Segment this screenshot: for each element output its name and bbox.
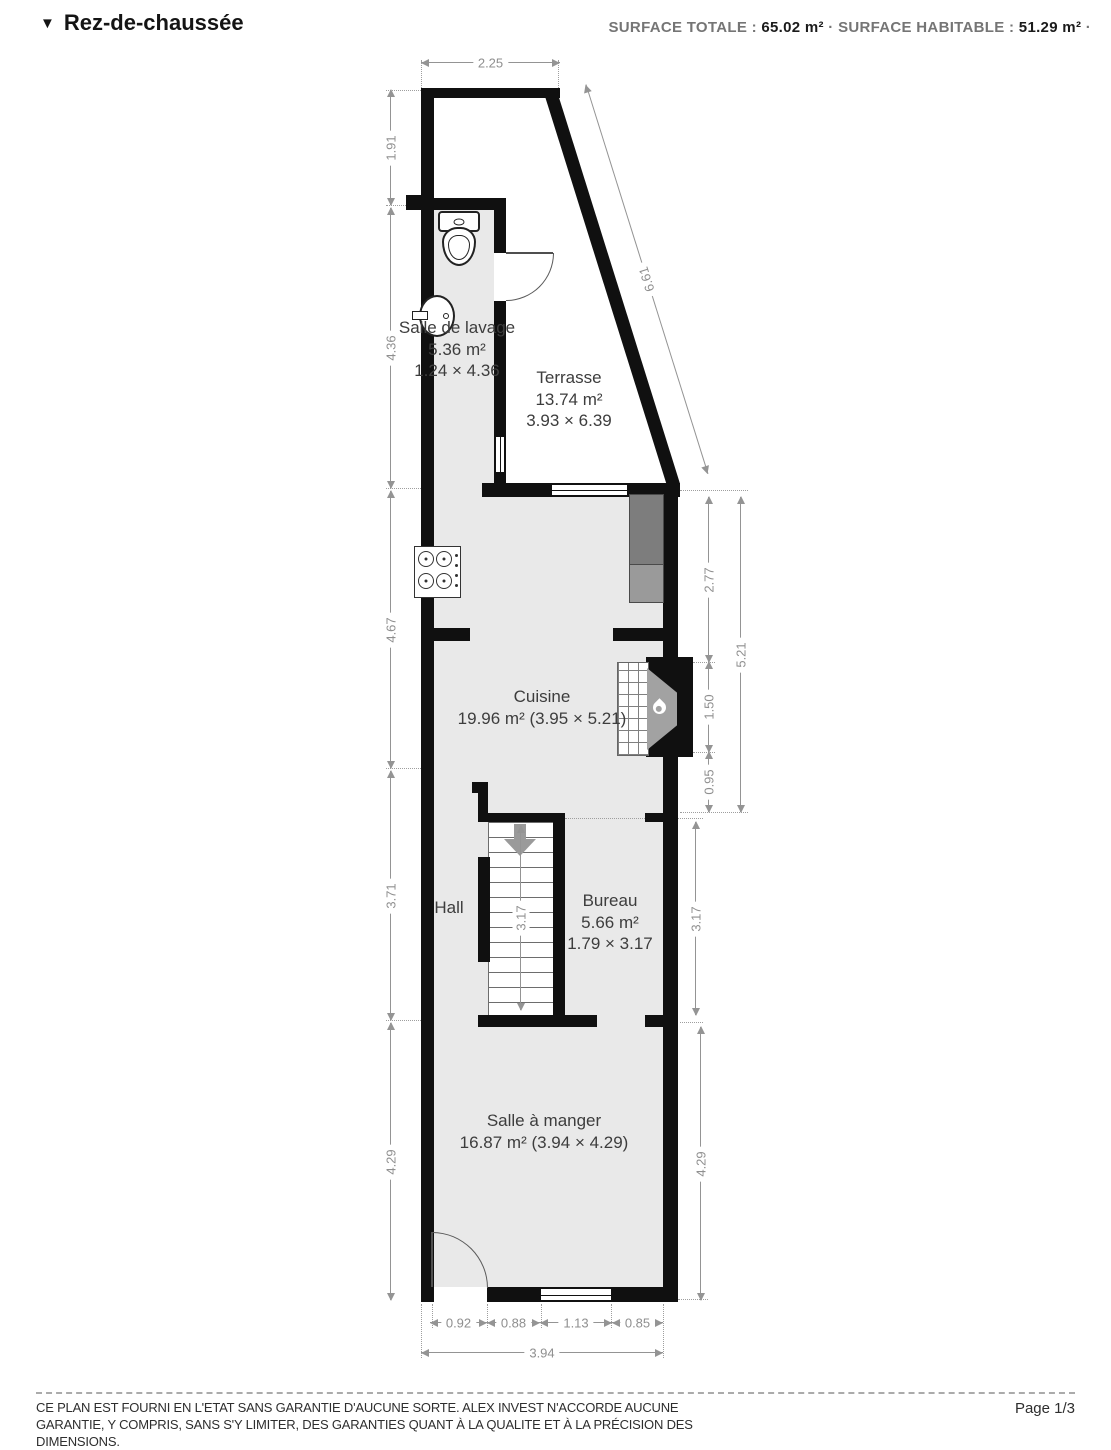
wall-bottom-c [611, 1287, 663, 1302]
dimension-left-4: 3.71 [390, 771, 391, 1020]
wall-stair-right [553, 813, 565, 1027]
floor-plan: 2.25 6.61 1.91 4.36 4.67 3.71 4.29 2.77 … [0, 0, 1111, 1440]
wall-bureau-stub-bottom [645, 1015, 663, 1027]
stove-burner [418, 551, 434, 567]
dimension-left-1: 1.91 [390, 90, 391, 205]
room-label-office: Bureau 5.66 m² 1.79 × 3.17 [567, 890, 653, 955]
extension-line [680, 1022, 703, 1023]
room-label-kitchen: Cuisine 19.96 m² (3.95 × 5.21) [458, 686, 627, 729]
laundry-door-swing [506, 253, 554, 301]
wall-stair-left-mid [478, 857, 490, 962]
dimension-bottom-total: 3.94 [421, 1352, 663, 1353]
stove-burner [436, 573, 452, 589]
wall-top [421, 88, 560, 98]
laundry-window [494, 437, 506, 472]
room-label-terrace: Terrasse 13.74 m² 3.93 × 6.39 [526, 367, 612, 432]
dimension-right-429: 4.29 [700, 1027, 701, 1300]
room-label-dining: Salle à manger 16.87 m² (3.94 × 4.29) [460, 1110, 629, 1153]
kitchen-window [552, 483, 627, 497]
dimension-left-3: 4.67 [390, 491, 391, 768]
dimension-left-5: 4.29 [390, 1023, 391, 1300]
dimension-stairs: 3.17 [520, 826, 521, 1010]
dimension-bottom-3: 1.13 [540, 1322, 612, 1323]
dimension-right-150: 1.50 [708, 662, 709, 752]
extension-line [565, 818, 703, 819]
dimension-right-277: 2.77 [708, 497, 709, 662]
stove-knob [455, 584, 458, 587]
kitchen-cabinet-lower [629, 564, 664, 603]
extension-line [680, 490, 748, 491]
room-name: Salle de lavage [399, 317, 515, 339]
dimension-right-317: 3.17 [695, 822, 696, 1015]
room-area-dimensions: 19.96 m² (3.95 × 5.21) [458, 708, 627, 730]
room-label-laundry: Salle de lavage 5.36 m² 1.24 × 4.36 [399, 317, 515, 382]
stove-icon [414, 546, 461, 598]
dimension-top: 2.25 [421, 62, 560, 63]
disclaimer-text: CE PLAN EST FOURNI EN L'ETAT SANS GARANT… [36, 1399, 736, 1450]
wall-stair-bottom [478, 1015, 597, 1027]
wall-bottom-b [487, 1287, 541, 1302]
wall-stair-corner-b [478, 782, 488, 822]
extension-line [663, 1304, 664, 1358]
dimension-right-095: 0.95 [708, 752, 709, 812]
room-dimensions: 1.79 × 3.17 [567, 933, 653, 955]
room-area: 13.74 m² [526, 389, 612, 411]
stove-knob [455, 574, 458, 577]
room-area: 5.36 m² [399, 339, 515, 361]
wall-left [421, 88, 434, 1302]
stove-burner [436, 551, 452, 567]
dimension-right-521: 5.21 [740, 497, 741, 812]
room-area: 5.66 m² [567, 912, 653, 934]
dimension-left-2: 4.36 [390, 208, 391, 488]
wall-laundry-right-a [494, 198, 506, 253]
room-area-dimensions: 16.87 m² (3.94 × 4.29) [460, 1132, 629, 1154]
wall-bottom-a [421, 1287, 432, 1302]
room-name: Cuisine [458, 686, 627, 708]
stove-knob [455, 554, 458, 557]
wall-kitchen-top-a [482, 483, 552, 497]
room-dimensions: 1.24 × 4.36 [399, 360, 515, 382]
page-indicator: Page 1/3 [1015, 1400, 1075, 1417]
wall-kitchen-stub-right [613, 628, 665, 641]
dimension-bottom-1: 0.92 [430, 1322, 487, 1323]
room-label-hall: Hall [434, 897, 463, 919]
room-name: Salle à manger [460, 1110, 629, 1132]
dining-window [541, 1287, 611, 1302]
wall-laundry-right-c [494, 472, 506, 483]
stove-burner [418, 573, 434, 589]
dimension-bottom-2: 0.88 [487, 1322, 540, 1323]
room-name: Bureau [567, 890, 653, 912]
wall-bureau-stub-top [645, 813, 663, 822]
wall-right [663, 483, 678, 1302]
room-name: Terrasse [526, 367, 612, 389]
room-name: Hall [434, 897, 463, 919]
footer-divider [36, 1392, 1075, 1394]
room-dimensions: 3.93 × 6.39 [526, 410, 612, 432]
wall-kitchen-stub-left [421, 628, 470, 641]
dimension-bottom-4: 0.85 [612, 1322, 663, 1323]
kitchen-cabinet-upper [629, 494, 664, 566]
stove-knob [455, 564, 458, 567]
